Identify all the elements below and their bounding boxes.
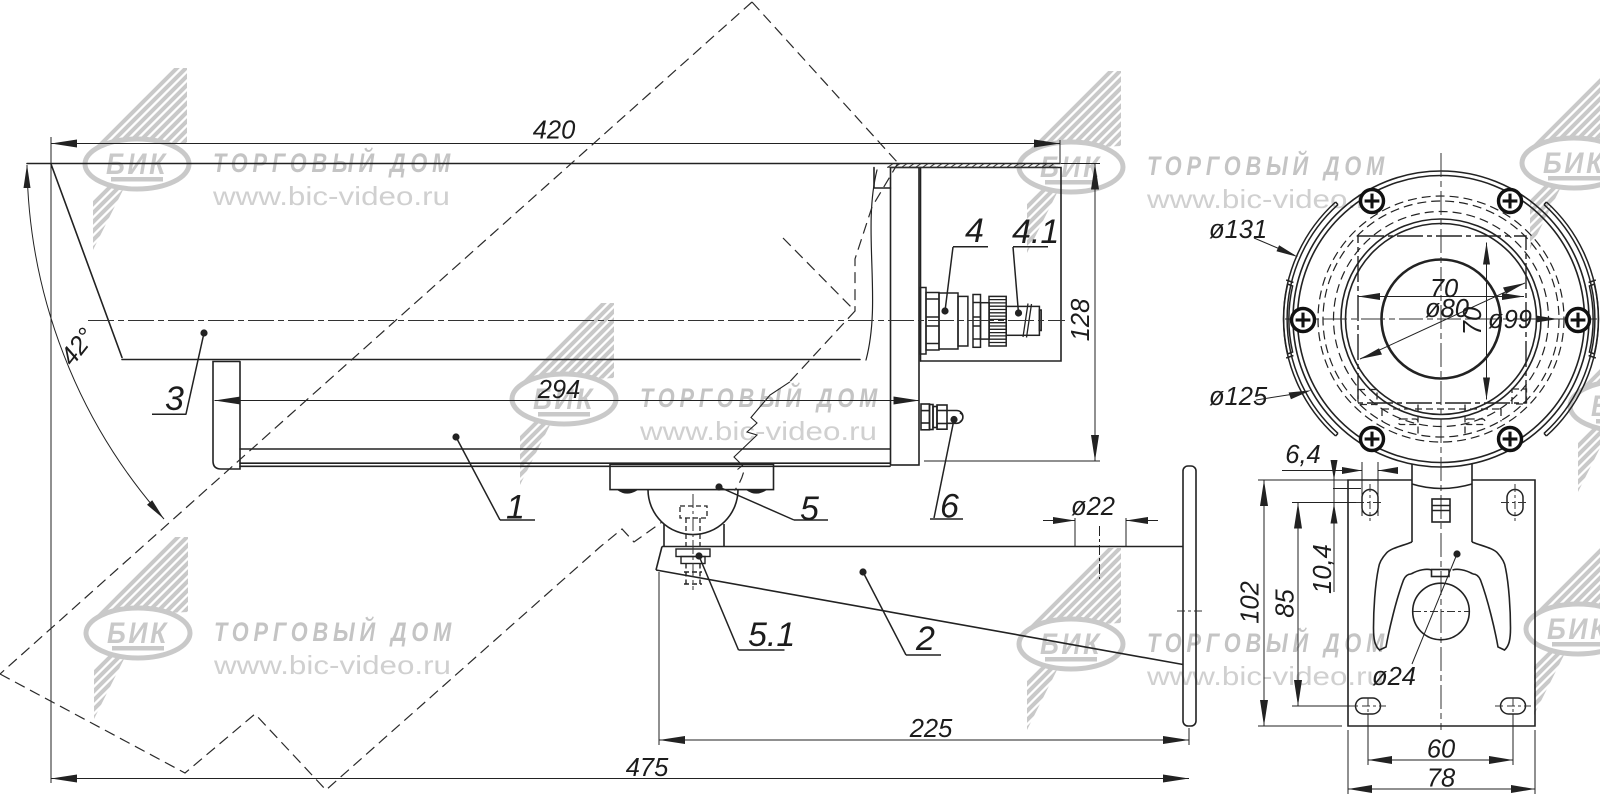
svg-text:4.1: 4.1: [1012, 213, 1059, 251]
svg-text:475: 475: [626, 754, 669, 782]
svg-text:ø125: ø125: [1209, 383, 1268, 411]
svg-text:78: 78: [1427, 765, 1456, 793]
svg-text:3: 3: [165, 380, 184, 418]
svg-text:60: 60: [1427, 736, 1455, 764]
svg-text:102: 102: [1237, 581, 1265, 624]
svg-text:225: 225: [909, 715, 953, 743]
svg-text:1: 1: [506, 489, 525, 527]
svg-text:85: 85: [1272, 589, 1300, 618]
svg-text:70: 70: [1459, 307, 1487, 335]
svg-text:ø24: ø24: [1372, 663, 1416, 691]
svg-text:420: 420: [533, 117, 576, 145]
svg-text:2: 2: [915, 620, 935, 658]
svg-text:5.1: 5.1: [748, 616, 795, 654]
svg-text:ø99: ø99: [1488, 306, 1532, 334]
svg-text:6,4: 6,4: [1285, 441, 1320, 469]
svg-text:10,4: 10,4: [1309, 544, 1337, 594]
svg-text:ø131: ø131: [1209, 216, 1267, 244]
svg-text:ø22: ø22: [1071, 493, 1115, 521]
svg-text:5: 5: [800, 490, 819, 528]
svg-text:6: 6: [940, 488, 959, 526]
svg-text:4: 4: [965, 212, 984, 250]
svg-text:294: 294: [537, 376, 581, 404]
svg-text:128: 128: [1067, 298, 1095, 341]
